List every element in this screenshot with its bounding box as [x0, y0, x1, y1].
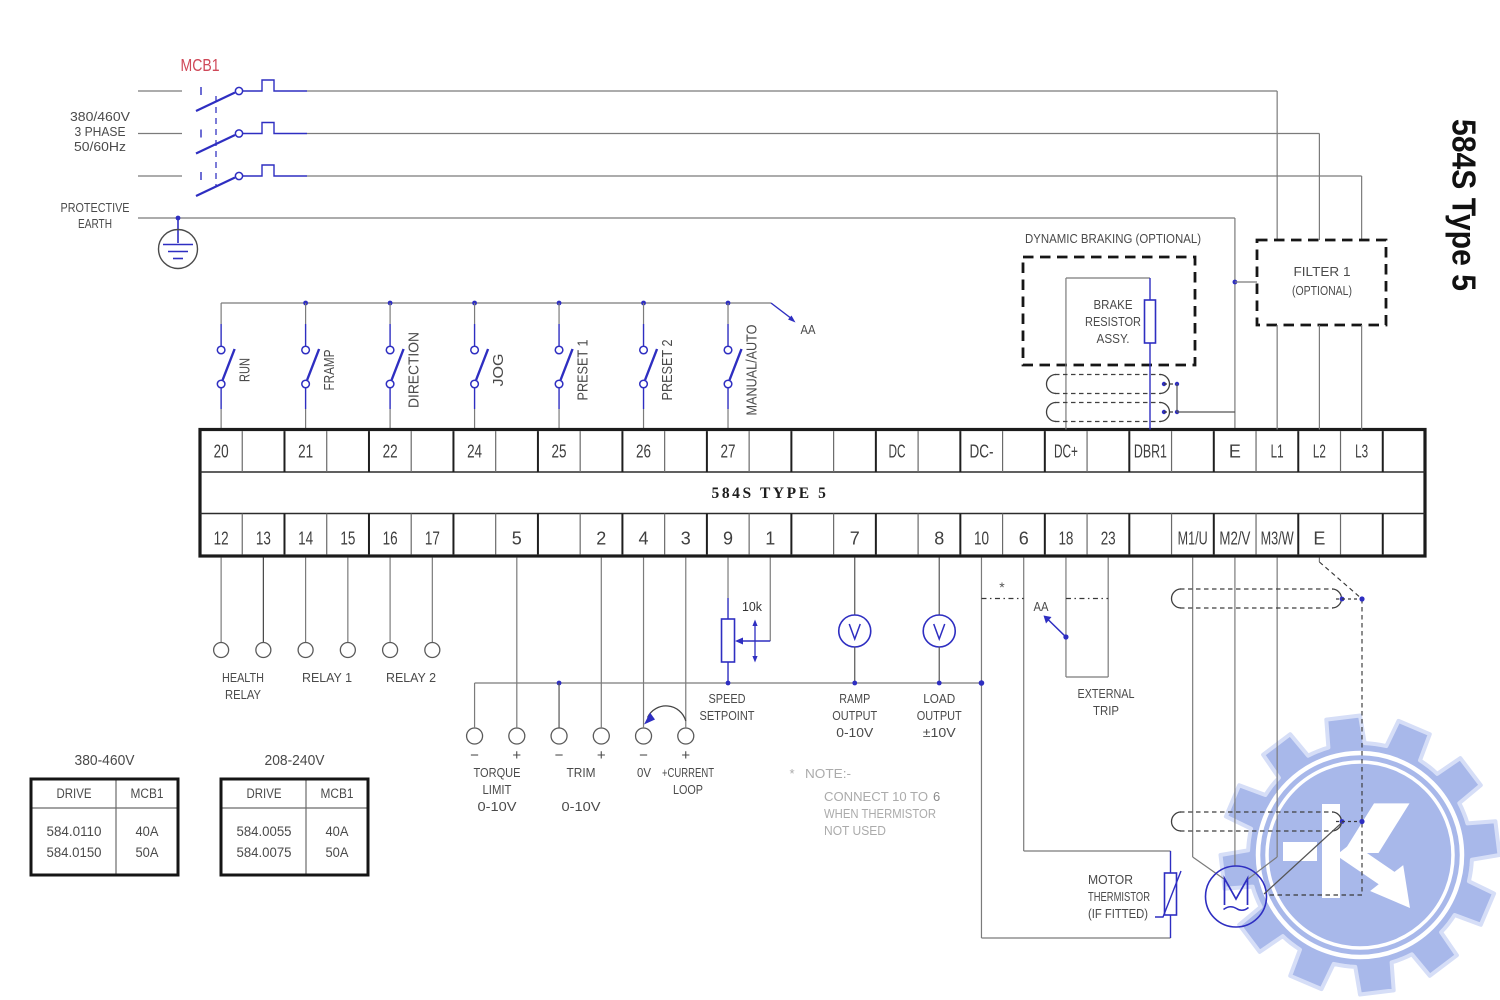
svg-text:PRESET 2: PRESET 2: [660, 340, 676, 401]
svg-text:9: 9: [723, 529, 733, 549]
svg-text:50/60Hz: 50/60Hz: [74, 139, 126, 154]
svg-text:27: 27: [721, 442, 736, 462]
svg-text:RUN: RUN: [238, 358, 254, 382]
svg-text:TRIM: TRIM: [567, 765, 596, 780]
svg-text:25: 25: [552, 442, 567, 462]
svg-text:20: 20: [214, 442, 229, 462]
svg-text:22: 22: [383, 442, 398, 462]
svg-text:40A: 40A: [136, 824, 159, 839]
svg-text:15: 15: [340, 529, 355, 549]
svg-text:584.0110: 584.0110: [47, 824, 102, 839]
svg-text:6: 6: [933, 789, 940, 804]
svg-text:21: 21: [298, 442, 313, 462]
svg-text:DRIVE: DRIVE: [247, 786, 282, 801]
svg-text:584.0075: 584.0075: [237, 845, 292, 860]
svg-text:380-460V: 380-460V: [75, 752, 135, 769]
svg-text:50A: 50A: [136, 845, 159, 860]
svg-text:±10V: ±10V: [923, 725, 956, 740]
svg-text:4: 4: [639, 529, 649, 549]
svg-text:RELAY: RELAY: [225, 687, 261, 702]
svg-text:MANUAL/AUTO: MANUAL/AUTO: [745, 325, 761, 416]
svg-text:12: 12: [214, 529, 229, 549]
svg-text:584S TYPE 5: 584S TYPE 5: [711, 485, 828, 502]
svg-text:8: 8: [934, 529, 944, 549]
svg-text:−: −: [470, 747, 479, 764]
svg-text:WHEN THERMISTOR: WHEN THERMISTOR: [824, 806, 936, 821]
svg-text:OUTPUT: OUTPUT: [917, 708, 962, 723]
svg-text:PROTECTIVE: PROTECTIVE: [61, 200, 130, 215]
svg-text:−: −: [555, 747, 564, 764]
svg-text:M3/W: M3/W: [1261, 529, 1294, 549]
svg-text:DRIVE: DRIVE: [57, 786, 92, 801]
svg-text:10k: 10k: [742, 599, 762, 614]
svg-text:10: 10: [974, 529, 989, 549]
svg-text:+: +: [597, 747, 606, 764]
svg-text:NOT USED: NOT USED: [824, 823, 886, 838]
svg-text:FILTER 1: FILTER 1: [1294, 264, 1351, 279]
svg-text:0V: 0V: [637, 765, 651, 780]
svg-text:(IF FITTED): (IF FITTED): [1088, 906, 1148, 921]
svg-text:0-10V: 0-10V: [478, 799, 517, 814]
svg-text:MCB1: MCB1: [181, 55, 220, 75]
svg-text:MCB1: MCB1: [131, 786, 164, 801]
svg-text:M1/U: M1/U: [1178, 529, 1208, 549]
svg-text:584S Type 5: 584S Type 5: [1446, 119, 1483, 291]
svg-text:2: 2: [596, 529, 606, 549]
svg-text:LIMIT: LIMIT: [483, 782, 512, 797]
svg-text:26: 26: [636, 442, 651, 462]
svg-text:MCB1: MCB1: [321, 786, 354, 801]
svg-text:RELAY 1: RELAY 1: [302, 670, 352, 685]
svg-text:DC+: DC+: [1054, 442, 1078, 462]
svg-text:6: 6: [1019, 529, 1029, 549]
svg-text:LOOP: LOOP: [673, 782, 703, 797]
svg-text:208-240V: 208-240V: [265, 752, 325, 769]
svg-text:0-10V: 0-10V: [562, 799, 601, 814]
svg-text:DBR1: DBR1: [1134, 442, 1167, 462]
svg-text:JOG: JOG: [491, 354, 507, 387]
svg-text:L1: L1: [1271, 442, 1284, 462]
svg-text:MOTOR: MOTOR: [1088, 872, 1133, 887]
svg-text:EXTERNAL: EXTERNAL: [1078, 686, 1135, 701]
svg-text:THERMISTOR: THERMISTOR: [1088, 889, 1150, 904]
svg-text:16: 16: [383, 529, 398, 549]
svg-text:17: 17: [425, 529, 440, 549]
svg-text:+CURRENT: +CURRENT: [662, 765, 714, 780]
svg-text:DC-: DC-: [969, 442, 993, 462]
svg-text:RELAY 2: RELAY 2: [386, 670, 436, 685]
svg-text:E: E: [1229, 442, 1241, 462]
svg-text:(OPTIONAL): (OPTIONAL): [1292, 283, 1352, 298]
svg-text:SPEED: SPEED: [709, 691, 746, 706]
svg-text:*: *: [789, 766, 794, 781]
svg-text:584.0055: 584.0055: [237, 824, 292, 839]
svg-text:40A: 40A: [326, 824, 349, 839]
svg-text:LOAD: LOAD: [923, 691, 955, 706]
svg-text:−: −: [639, 747, 648, 764]
svg-text:14: 14: [298, 529, 313, 549]
svg-text:380/460V: 380/460V: [70, 109, 130, 124]
svg-text:SETPOINT: SETPOINT: [700, 708, 755, 723]
svg-text:584.0150: 584.0150: [47, 845, 102, 860]
svg-text:3 PHASE: 3 PHASE: [75, 124, 126, 139]
svg-text:L2: L2: [1313, 442, 1326, 462]
svg-text:OUTPUT: OUTPUT: [832, 708, 877, 723]
svg-text:50A: 50A: [326, 845, 349, 860]
svg-text:3: 3: [681, 529, 691, 549]
svg-text:DIRECTION: DIRECTION: [407, 332, 423, 408]
svg-text:13: 13: [256, 529, 271, 549]
svg-text:1: 1: [765, 529, 775, 549]
svg-text:5: 5: [512, 529, 522, 549]
svg-text:AA: AA: [1034, 600, 1050, 614]
svg-text:7: 7: [850, 529, 860, 549]
svg-text:TORQUE: TORQUE: [474, 765, 521, 780]
svg-text:24: 24: [467, 442, 482, 462]
svg-text:+: +: [681, 747, 690, 764]
svg-text:L3: L3: [1355, 442, 1368, 462]
svg-text:RAMP: RAMP: [839, 691, 870, 706]
svg-text:TRIP: TRIP: [1093, 703, 1119, 718]
svg-text:E: E: [1313, 529, 1325, 549]
svg-text:FRAMP: FRAMP: [322, 350, 338, 391]
svg-text:18: 18: [1058, 529, 1073, 549]
svg-text:23: 23: [1101, 529, 1116, 549]
svg-text:M2/V: M2/V: [1219, 529, 1250, 549]
svg-text:HEALTH: HEALTH: [222, 670, 264, 685]
svg-text:DYNAMIC BRAKING (OPTIONAL): DYNAMIC BRAKING (OPTIONAL): [1025, 231, 1201, 246]
svg-text:AA: AA: [801, 323, 817, 337]
svg-text:*: *: [999, 579, 1005, 595]
svg-text:RESISTOR: RESISTOR: [1085, 314, 1141, 329]
svg-text:ASSY.: ASSY.: [1097, 331, 1130, 346]
svg-text:+: +: [512, 747, 521, 764]
svg-text:NOTE:-: NOTE:-: [805, 766, 851, 781]
svg-text:PRESET 1: PRESET 1: [576, 340, 592, 401]
svg-text:BRAKE: BRAKE: [1094, 297, 1133, 312]
svg-text:EARTH: EARTH: [78, 216, 112, 231]
svg-text:0-10V: 0-10V: [836, 725, 873, 740]
svg-text:CONNECT 10 TO: CONNECT 10 TO: [824, 789, 928, 804]
svg-text:DC: DC: [888, 442, 905, 462]
